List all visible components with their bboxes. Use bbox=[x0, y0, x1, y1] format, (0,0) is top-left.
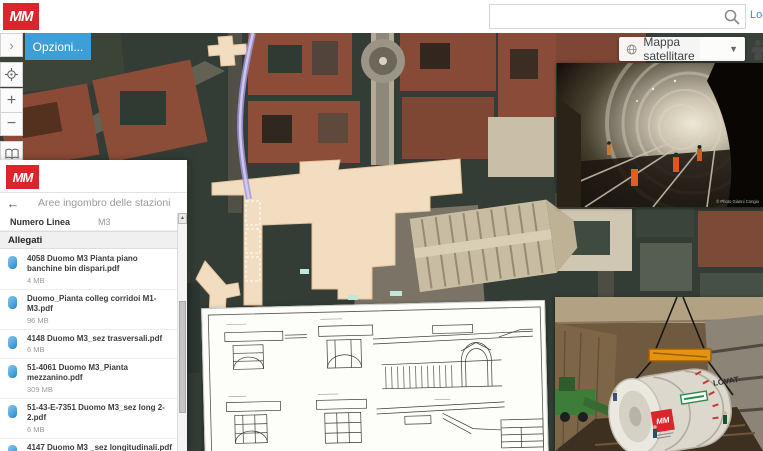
attachment-size: 6 MB bbox=[27, 345, 162, 354]
attachment-name: Duomo_Pianta colleg corridoi M1-M3.pdf bbox=[27, 294, 173, 315]
attachment-name: 4148 Duomo M3_sez trasversali.pdf bbox=[27, 334, 162, 344]
attachment-item[interactable]: 51-43-E-7351 Duomo M3_sez long 2-2.pdf 6… bbox=[0, 399, 177, 439]
mm-gis-application: MM Login › + − Opzioni... bbox=[0, 0, 763, 451]
panel-title: Aree ingombro delle stazioni bbox=[38, 197, 171, 209]
attachment-item[interactable]: 51-4061 Duomo M3_Pianta mezzanino.pdf 30… bbox=[0, 359, 177, 399]
basemap-selector[interactable]: Mappa satellitare ▼ bbox=[619, 37, 745, 61]
zoom-in-button[interactable]: + bbox=[0, 88, 23, 112]
station-panel: MM ← Aree ingombro delle stazioni Numero… bbox=[0, 160, 187, 451]
search-input[interactable] bbox=[494, 6, 714, 27]
attachment-name: 51-43-E-7351 Duomo M3_sez long 2-2.pdf bbox=[27, 403, 173, 424]
attachment-icon bbox=[8, 296, 17, 309]
top-bar: MM Login bbox=[0, 0, 763, 33]
basemap-selector-label: Mappa satellitare bbox=[643, 35, 723, 63]
mm-logo[interactable]: MM bbox=[3, 3, 39, 30]
attachments-section-header: Allegati bbox=[0, 231, 187, 249]
attachment-icon bbox=[8, 445, 17, 451]
attachment-item[interactable]: 4147 Duomo M3 _sez longitudinali.pdf 5 M… bbox=[0, 439, 177, 451]
technical-drawing-inset[interactable] bbox=[201, 300, 549, 451]
panel-header: MM bbox=[0, 160, 187, 193]
photo-credit-caption: © Photo Gianni Congiu bbox=[716, 199, 760, 204]
pegman-icon[interactable] bbox=[749, 39, 763, 61]
scrollbar-thumb[interactable] bbox=[179, 301, 186, 413]
attachment-size: 309 MB bbox=[27, 385, 173, 394]
attachment-size: 4 MB bbox=[27, 276, 173, 285]
attachment-name: 51-4061 Duomo M3_Pianta mezzanino.pdf bbox=[27, 363, 173, 384]
attachment-name: 4147 Duomo M3 _sez longitudinali.pdf bbox=[27, 443, 172, 451]
options-button[interactable]: Opzioni... bbox=[25, 33, 91, 60]
tunnel-photo-inset[interactable]: © Photo Gianni Congiu bbox=[557, 63, 763, 207]
attachment-item[interactable]: 4148 Duomo M3_sez trasversali.pdf 6 MB bbox=[0, 330, 177, 359]
scrollbar-up-arrow[interactable]: ▲ bbox=[178, 213, 187, 224]
login-link[interactable]: Login bbox=[750, 9, 763, 21]
attachment-size: 96 MB bbox=[27, 316, 173, 325]
attachment-icon bbox=[8, 336, 17, 349]
chevron-down-icon: ▼ bbox=[729, 44, 738, 54]
attachment-name: 4058 Duomo M3 Pianta piano banchine bin … bbox=[27, 254, 173, 275]
attachment-item[interactable]: 4058 Duomo M3 Pianta piano banchine bin … bbox=[0, 250, 177, 290]
attachments-list: 4058 Duomo M3 Pianta piano banchine bin … bbox=[0, 250, 177, 451]
line-number-value: M3 bbox=[98, 217, 111, 227]
attachment-icon bbox=[8, 365, 17, 378]
attachment-icon bbox=[8, 405, 17, 418]
attachment-size: 6 MB bbox=[27, 425, 173, 434]
attachment-icon bbox=[8, 256, 17, 269]
line-number-label: Numero Linea bbox=[10, 217, 70, 227]
tbm-photo-inset[interactable]: MM LOVAT bbox=[555, 297, 763, 451]
panel-scrollbar[interactable]: ▲ bbox=[177, 213, 187, 451]
attachment-item[interactable]: Duomo_Pianta colleg corridoi M1-M3.pdf 9… bbox=[0, 290, 177, 330]
back-arrow-icon[interactable]: ← bbox=[0, 196, 26, 211]
panel-mm-logo[interactable]: MM bbox=[6, 165, 39, 189]
search-box bbox=[489, 4, 746, 29]
panel-expand-chevron[interactable]: › bbox=[0, 33, 23, 57]
search-icon[interactable] bbox=[723, 8, 741, 26]
globe-icon bbox=[626, 43, 637, 56]
locate-icon[interactable] bbox=[0, 62, 23, 87]
line-number-field: Numero Linea M3 bbox=[0, 213, 187, 231]
zoom-out-button[interactable]: − bbox=[0, 112, 23, 136]
drawing-sheet bbox=[201, 300, 549, 451]
